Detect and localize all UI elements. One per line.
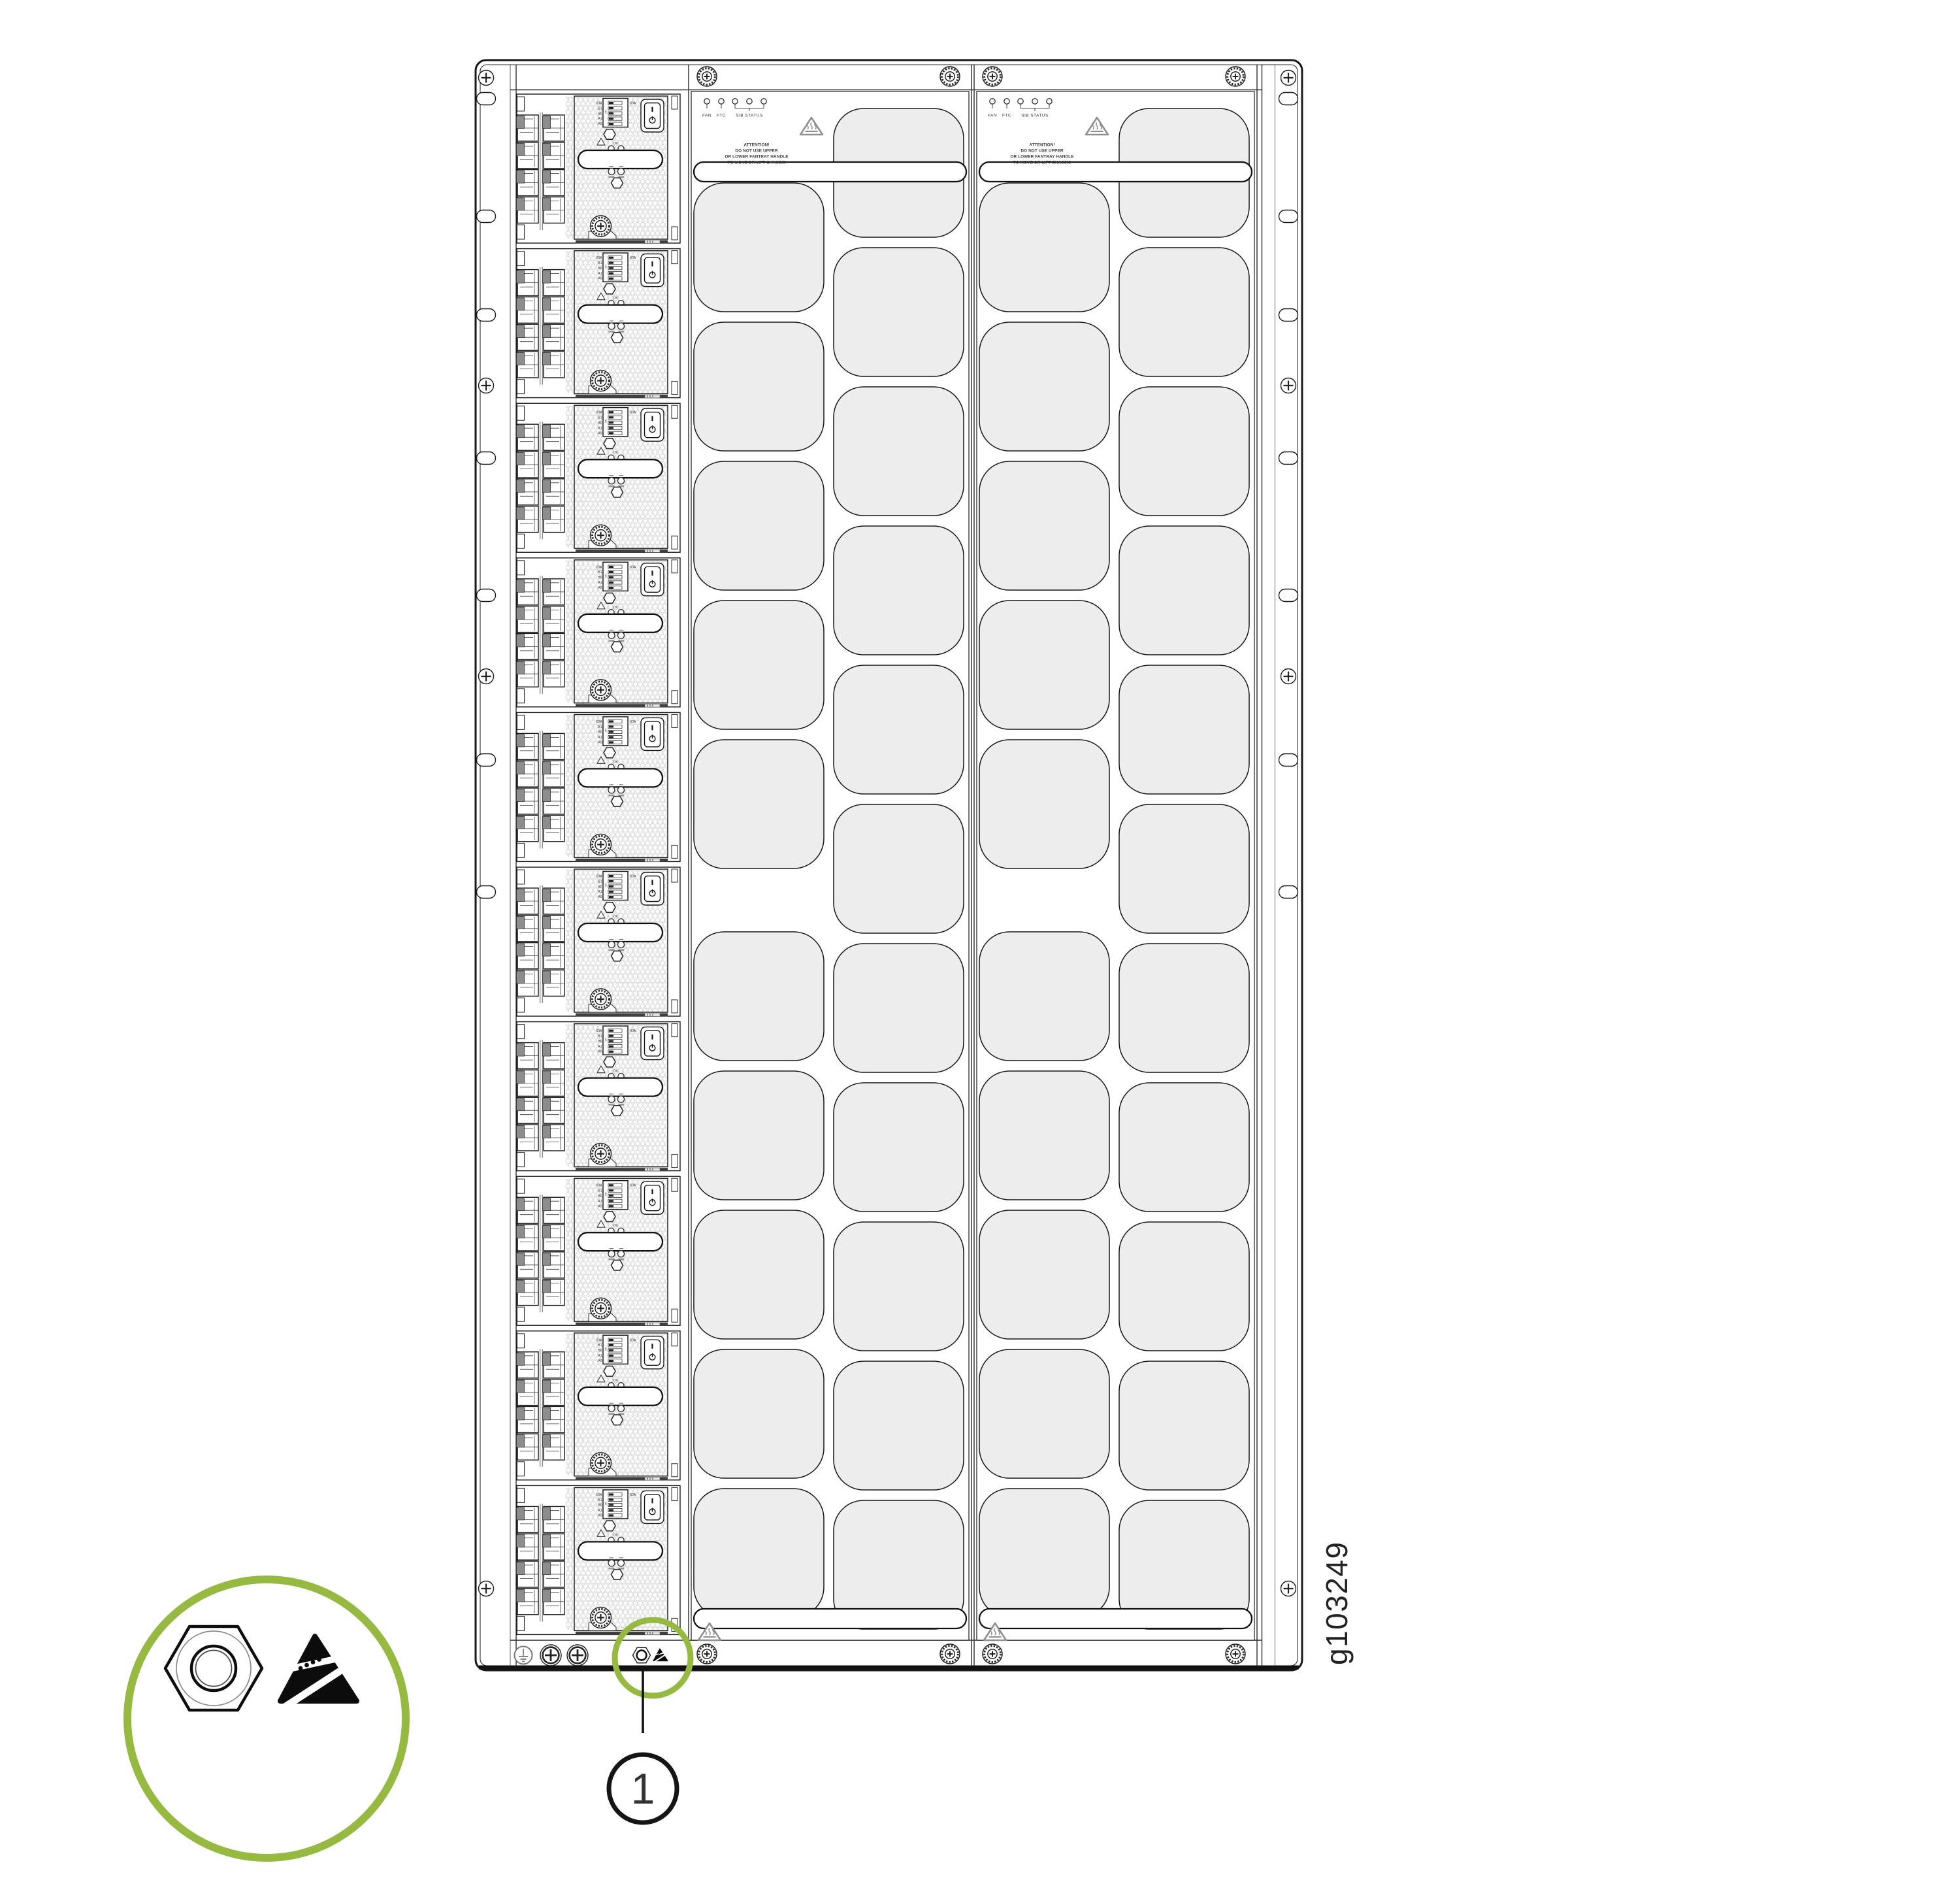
dip-switch-nub <box>609 416 613 418</box>
dip-switch-nub <box>609 257 613 259</box>
latch-tab[interactable] <box>543 353 551 365</box>
led-sib-status <box>1018 99 1023 104</box>
led-micro-label <box>609 486 615 487</box>
fan-cutout <box>694 322 824 451</box>
amp-rating-label: 60A <box>630 1493 637 1497</box>
latch-tab[interactable] <box>543 816 551 829</box>
status-led <box>608 169 615 175</box>
svg-text:TO MOVE OR LIFT CHASSIS: TO MOVE OR LIFT CHASSIS <box>1013 161 1071 165</box>
latch-tab[interactable] <box>543 762 551 774</box>
fan-tray-handle-bottom[interactable] <box>979 1609 1252 1628</box>
latch-tab[interactable] <box>517 1198 525 1211</box>
card-guide <box>672 1155 678 1168</box>
dip-switch-nub <box>609 102 613 104</box>
flange-slot <box>1279 886 1298 899</box>
fan-tray-handle-top[interactable] <box>694 162 966 182</box>
latch-tab[interactable] <box>543 1226 551 1238</box>
dip-switch-nub <box>609 885 613 887</box>
dip-rows <box>608 1493 622 1517</box>
card-handle[interactable] <box>578 614 662 633</box>
dip-label: A0 <box>598 1204 602 1208</box>
latch-tab[interactable] <box>517 325 525 338</box>
amp-rating-label: 60A <box>630 256 637 260</box>
dip-switch-nub <box>609 880 613 882</box>
latch-tab[interactable] <box>517 1408 525 1420</box>
latch-tab[interactable] <box>517 1126 525 1138</box>
fan-cutout <box>979 1489 1109 1617</box>
line-card: ON 60A B1 B0 A1 A0 60A OK <box>517 403 681 553</box>
dip-label: A1 <box>598 736 602 740</box>
esd-jack-icon[interactable] <box>633 1647 651 1662</box>
status-led <box>608 632 615 638</box>
amp-rating-label: 60A <box>630 102 637 106</box>
dip-label: B1 <box>598 570 602 574</box>
latch-tab[interactable] <box>543 1535 551 1547</box>
standoff-hex-icon <box>604 129 615 140</box>
status-led <box>608 323 615 329</box>
latch-tab[interactable] <box>517 1562 525 1575</box>
latch-tab[interactable] <box>517 816 525 829</box>
standoff-hex-icon <box>604 1366 615 1377</box>
latch-tab[interactable] <box>543 1071 551 1083</box>
amp-rating-label: 60A <box>630 1029 637 1033</box>
latch-tab[interactable] <box>543 198 551 210</box>
latch-tab[interactable] <box>543 1380 551 1393</box>
card-guide <box>672 1487 678 1500</box>
standoff-hex-icon <box>604 593 615 604</box>
status-led <box>608 1560 615 1566</box>
latch-tab[interactable] <box>517 353 525 365</box>
fan-tray-handle-top[interactable] <box>979 162 1252 182</box>
amp-rating-label: 60A <box>630 411 637 415</box>
port-cage-group <box>517 1506 539 1532</box>
led-label-fan: FAN <box>702 114 711 118</box>
latch-tab[interactable] <box>543 1098 551 1111</box>
latch-tab[interactable] <box>517 580 525 592</box>
dip-label: A0 <box>598 277 602 281</box>
latch-tab[interactable] <box>543 1589 551 1602</box>
fan-cutout <box>834 804 964 933</box>
latch-tab[interactable] <box>543 425 551 438</box>
latch-tab[interactable] <box>543 635 551 647</box>
amp-rating-label: 60A <box>630 1338 637 1342</box>
latch-tab[interactable] <box>517 607 525 619</box>
dip-switch-nub <box>609 1355 613 1357</box>
status-led <box>618 1096 625 1102</box>
fan-cutout <box>694 932 824 1061</box>
latch-tab[interactable] <box>543 325 551 338</box>
port-cage-group <box>543 270 565 296</box>
latch-tab[interactable] <box>543 1253 551 1265</box>
latch-tab[interactable] <box>543 143 551 156</box>
status-led <box>608 787 615 793</box>
fan-cutout <box>694 1210 824 1339</box>
port-cage-group <box>517 1406 539 1432</box>
card-captive-screw-icon[interactable] <box>591 525 612 546</box>
card-captive-screw-icon[interactable] <box>591 834 612 855</box>
fan-cutout <box>834 526 964 655</box>
port-cage-group <box>517 424 539 450</box>
fan-tray-bay: FAN FTC SIB STATUS ATTENTION! DO NOT USE… <box>689 65 1257 1666</box>
card-perforated-rail <box>566 1025 574 1166</box>
card-perforated-rail <box>566 870 574 1012</box>
standoff-hex-icon <box>604 284 615 294</box>
latch-tab[interactable] <box>517 171 525 183</box>
captive-screw-icon <box>983 1644 1002 1664</box>
card-perforated-rail <box>566 1488 574 1630</box>
latch-tab[interactable] <box>517 453 525 465</box>
latch-tab[interactable] <box>517 480 525 492</box>
dip-label: A0 <box>598 431 602 435</box>
card-captive-screw-icon[interactable] <box>591 989 612 1010</box>
card-captive-screw-icon[interactable] <box>591 1607 612 1628</box>
power-switch[interactable] <box>641 872 664 905</box>
dip-switch-nub <box>609 1040 613 1042</box>
latch-tab[interactable] <box>543 480 551 492</box>
flange-screw-icon <box>479 1581 494 1596</box>
latch-tab[interactable] <box>543 916 551 929</box>
latch-tab[interactable] <box>543 1126 551 1138</box>
dip-label: A1 <box>598 581 602 585</box>
port-cage-group <box>543 506 565 533</box>
power-switch[interactable] <box>641 254 664 287</box>
dip-on-label: ON <box>605 110 608 114</box>
svg-text:ATTENTION!: ATTENTION! <box>743 143 769 148</box>
captive-screw-icon <box>697 67 717 86</box>
latch-tab[interactable] <box>543 735 551 747</box>
card-handle[interactable] <box>578 1542 662 1560</box>
latch-tab[interactable] <box>517 298 525 310</box>
ok-label: OK <box>613 1379 619 1383</box>
line-card: ON 60A B1 B0 A1 A0 60A OK <box>517 867 681 1017</box>
standoff-hex-icon <box>604 1521 615 1531</box>
latch-tab[interactable] <box>517 662 525 674</box>
latch-tab[interactable] <box>517 1353 525 1365</box>
dip-label: 60A <box>596 1184 603 1188</box>
card-captive-screw-icon[interactable] <box>591 680 612 701</box>
led-fan <box>704 99 710 104</box>
card-guide <box>672 405 678 418</box>
latch-tab[interactable] <box>543 1408 551 1420</box>
card-ejector <box>517 1488 525 1502</box>
latch-tab[interactable] <box>517 507 525 520</box>
callout-1-badge: 1 <box>609 1755 677 1823</box>
latch-tab[interactable] <box>543 607 551 619</box>
latch-tab[interactable] <box>517 425 525 438</box>
card-captive-screw-icon[interactable] <box>591 371 612 391</box>
power-switch[interactable] <box>641 1027 664 1060</box>
latch-tab[interactable] <box>543 1508 551 1520</box>
card-ejector <box>517 1334 525 1348</box>
fan-cutout <box>1119 1083 1249 1212</box>
dip-label: B0 <box>598 1504 602 1508</box>
dip-rows <box>608 1183 622 1208</box>
flange-slot <box>477 309 496 322</box>
flange-screw-icon <box>1281 71 1296 86</box>
card-handle[interactable] <box>578 459 662 478</box>
dip-label: 60A <box>596 1338 603 1342</box>
card-captive-screw-icon[interactable] <box>591 1144 612 1164</box>
power-switch[interactable] <box>641 408 664 441</box>
ok-label: OK <box>613 1533 619 1537</box>
led-micro-label <box>609 176 615 178</box>
status-led <box>618 632 625 638</box>
port-cage-group <box>543 633 565 659</box>
card-ejector <box>517 1179 525 1193</box>
dip-switch-nub <box>609 891 613 893</box>
dip-label: 60A <box>596 565 603 569</box>
captive-screw-icon <box>940 1644 960 1664</box>
latch-tab[interactable] <box>517 1280 525 1293</box>
status-led <box>618 323 625 329</box>
port-cage-group <box>517 479 539 505</box>
dip-switch-nub <box>609 107 613 109</box>
bottom-strip <box>515 1645 668 1666</box>
dip-label: A0 <box>598 741 602 745</box>
latch-tab[interactable] <box>517 1508 525 1520</box>
dip-label: B1 <box>598 261 602 265</box>
latch-tab[interactable] <box>543 971 551 983</box>
latch-tab[interactable] <box>517 1044 525 1056</box>
latch-tab[interactable] <box>517 789 525 802</box>
card-guide <box>672 1464 678 1477</box>
dip-label: A0 <box>598 1514 602 1518</box>
power-switch[interactable] <box>641 99 664 132</box>
card-guide <box>672 869 678 882</box>
dip-label: A0 <box>598 895 602 899</box>
card-handle[interactable] <box>578 150 662 169</box>
card-captive-screw-icon[interactable] <box>591 216 612 237</box>
port-cage-group <box>517 142 539 169</box>
led-micro-label <box>609 640 615 642</box>
port-cage-group <box>517 970 539 996</box>
latch-tab[interactable] <box>517 1098 525 1111</box>
latch-tab[interactable] <box>517 889 525 902</box>
card-handle[interactable] <box>578 768 662 787</box>
card-ejector <box>517 406 525 420</box>
latch-tab[interactable] <box>543 271 551 283</box>
fan-cutout <box>979 322 1109 451</box>
svg-text:OR LOWER FANTRAY HANDLE: OR LOWER FANTRAY HANDLE <box>1010 155 1074 159</box>
latch-tab[interactable] <box>517 971 525 983</box>
port-cage-group <box>543 142 565 169</box>
standoff-hex-icon <box>604 1212 615 1222</box>
led-label-fan: FAN <box>988 114 997 118</box>
line-card: ON 60A B1 B0 A1 A0 60A OK <box>517 1022 681 1172</box>
latch-tab[interactable] <box>517 1071 525 1083</box>
card-handle[interactable] <box>578 1078 662 1097</box>
card-perforated-rail <box>566 97 574 239</box>
fan-cutout <box>1119 1222 1249 1351</box>
latch-tab[interactable] <box>543 1198 551 1211</box>
latch-tab[interactable] <box>517 1589 525 1602</box>
latch-tab[interactable] <box>517 116 525 129</box>
latch-tab[interactable] <box>543 1353 551 1365</box>
latch-tab[interactable] <box>517 271 525 283</box>
latch-tab[interactable] <box>517 762 525 774</box>
latch-tab[interactable] <box>543 662 551 674</box>
led-micro-label <box>609 1413 615 1415</box>
svg-text:DO NOT USE UPPER: DO NOT USE UPPER <box>1021 149 1063 154</box>
line-card: ON 60A B1 B0 A1 A0 60A OK <box>517 1331 681 1481</box>
chassis-front-diagram: ON 60A B1 B0 A1 A0 60A OK <box>0 0 1960 1882</box>
card-ejector <box>517 1307 525 1321</box>
flange-screw-icon <box>479 378 494 393</box>
latch-tab[interactable] <box>543 116 551 129</box>
latch-tab[interactable] <box>543 171 551 183</box>
card-guide <box>672 1178 678 1191</box>
card-ejector <box>517 561 525 575</box>
line-card: ON 60A B1 B0 A1 A0 60A OK <box>517 249 681 398</box>
standoff-hex-icon <box>612 1415 623 1425</box>
dip-switch-nub <box>609 1035 613 1037</box>
dip-switch-nub <box>609 267 613 269</box>
latch-tab[interactable] <box>517 1253 525 1265</box>
port-cage-group <box>543 761 565 787</box>
fan-cutout <box>834 248 964 376</box>
latch-tab[interactable] <box>517 1435 525 1447</box>
status-led <box>608 1405 615 1411</box>
card-handle[interactable] <box>578 305 662 323</box>
callout-number: 1 <box>631 1764 655 1813</box>
dip-on-label: ON <box>605 1501 608 1505</box>
svg-text:TO MOVE OR LIFT CHASSIS: TO MOVE OR LIFT CHASSIS <box>728 161 786 165</box>
card-ejector <box>517 1153 525 1167</box>
port-cage-group <box>543 1252 565 1278</box>
dip-label: B0 <box>598 731 602 735</box>
status-led <box>608 478 615 484</box>
fan-cutout <box>979 183 1109 312</box>
port-cage-group <box>517 1352 539 1378</box>
card-perforated-rail <box>566 1334 574 1476</box>
card-guide <box>672 845 678 858</box>
dip-label: B1 <box>598 416 602 420</box>
flange-slot <box>1279 589 1298 602</box>
line-card: ON 60A B1 B0 A1 A0 60A OK <box>517 712 681 862</box>
card-handle[interactable] <box>578 923 662 942</box>
fan-tray: FAN FTC SIB STATUS ATTENTION! DO NOT USE… <box>689 65 972 1666</box>
led-sib-status <box>747 99 752 104</box>
latch-tab[interactable] <box>517 143 525 156</box>
latch-tab[interactable] <box>543 453 551 465</box>
captive-screw-icon <box>940 67 960 86</box>
fan-cutout <box>834 1222 964 1351</box>
fan-cutout <box>979 1210 1109 1339</box>
dip-on-label: ON <box>605 1038 608 1042</box>
dip-switch-nub <box>609 1360 613 1362</box>
port-cage-group <box>517 916 539 942</box>
power-switch[interactable] <box>641 563 664 596</box>
fan-cutout <box>1119 1361 1249 1490</box>
card-captive-screw-icon[interactable] <box>591 1453 612 1474</box>
latch-tab[interactable] <box>543 1435 551 1447</box>
latch-tab[interactable] <box>543 1044 551 1056</box>
fan-cutout <box>1119 248 1249 376</box>
standoff-hex-icon <box>612 1260 623 1270</box>
card-guide <box>672 1333 678 1346</box>
svg-text:OR LOWER FANTRAY HANDLE: OR LOWER FANTRAY HANDLE <box>725 155 789 159</box>
dip-label: A0 <box>598 1050 602 1054</box>
status-led <box>618 942 625 948</box>
latch-tab[interactable] <box>517 1535 525 1547</box>
latch-tab[interactable] <box>543 789 551 802</box>
ground-terminal-icon <box>515 1647 532 1664</box>
status-led <box>608 1251 615 1257</box>
latch-tab[interactable] <box>517 944 525 956</box>
port-cage-group <box>543 1406 565 1432</box>
dip-label: 60A <box>596 1029 603 1033</box>
port-cage-group <box>543 1043 565 1069</box>
ok-label: OK <box>613 297 619 301</box>
power-switch[interactable] <box>641 1336 664 1369</box>
port-cage-group <box>543 424 565 450</box>
port-cage-group <box>517 197 539 223</box>
status-led <box>618 1405 625 1411</box>
port-cage-group <box>543 1125 565 1151</box>
latch-tab[interactable] <box>543 507 551 520</box>
latch-tab[interactable] <box>543 298 551 310</box>
power-switch[interactable] <box>641 718 664 750</box>
port-cage-group <box>543 1534 565 1560</box>
port-cage-group <box>543 733 565 759</box>
latch-tab[interactable] <box>517 916 525 929</box>
dip-on-label: ON <box>605 574 608 578</box>
latch-tab[interactable] <box>543 944 551 956</box>
latch-tab[interactable] <box>517 1226 525 1238</box>
status-led <box>618 478 625 484</box>
standoff-hex-icon <box>612 333 623 343</box>
latch-tab[interactable] <box>543 889 551 902</box>
flange-screw-icon <box>1281 1581 1296 1596</box>
port-cage-group <box>517 297 539 323</box>
latch-tab[interactable] <box>543 1280 551 1293</box>
latch-tab[interactable] <box>517 198 525 210</box>
power-switch[interactable] <box>641 1491 664 1523</box>
dip-switch-nub <box>609 731 613 733</box>
port-cage-group <box>517 352 539 378</box>
latch-tab[interactable] <box>517 735 525 747</box>
card-ejector <box>517 715 525 729</box>
dip-switch-nub <box>609 720 613 722</box>
captive-screw-icon <box>1226 67 1245 86</box>
card-handle[interactable] <box>578 1387 662 1406</box>
card-handle[interactable] <box>578 1232 662 1251</box>
port-cage-group <box>543 1506 565 1532</box>
fan-cutout <box>834 944 964 1072</box>
latch-tab[interactable] <box>543 580 551 592</box>
power-switch[interactable] <box>641 1181 664 1214</box>
led-label-sib-status: SIB STATUS <box>736 114 763 118</box>
fan-cutout <box>694 1071 824 1200</box>
port-cage-group <box>543 788 565 814</box>
port-cage-group <box>517 324 539 350</box>
card-captive-screw-icon[interactable] <box>591 1298 612 1319</box>
dip-switch-nub <box>609 566 613 568</box>
port-cage-group <box>543 661 565 687</box>
dip-switch-nub <box>609 741 613 743</box>
latch-tab[interactable] <box>517 1380 525 1393</box>
fan-tray-handle-bottom[interactable] <box>694 1609 966 1628</box>
dip-label: B0 <box>598 421 602 425</box>
latch-tab[interactable] <box>517 635 525 647</box>
port-cage-group <box>517 270 539 296</box>
ok-label: OK <box>613 915 619 919</box>
latch-tab[interactable] <box>543 1562 551 1575</box>
dip-switch-nub <box>609 278 613 280</box>
line-card: ON 60A B1 B0 A1 A0 60A OK <box>517 1485 681 1635</box>
dip-switch-nub <box>609 587 613 589</box>
led-micro-label <box>609 1568 615 1570</box>
